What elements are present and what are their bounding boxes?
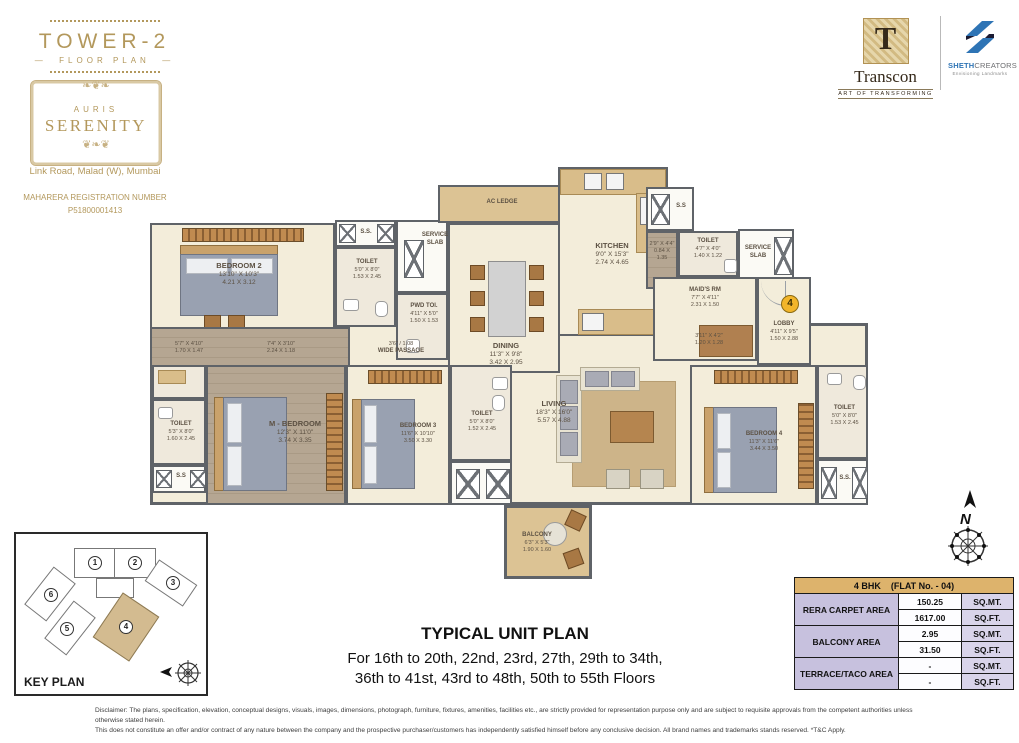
room-label-master-bedroom: M - BEDROOM 12'3" X 11'0" 3.74 X 3.35 (250, 419, 340, 446)
pillow-icon (227, 446, 242, 486)
chair-icon (529, 291, 544, 306)
area-table-header: 4 BHK (FLAT No. - 04) (795, 578, 1014, 594)
room-ac-ledge: AC LEDGE (438, 185, 566, 223)
area-unit: SQ.MT. (961, 658, 1013, 674)
area-value: - (899, 658, 962, 674)
area-unit: SQ.FT. (961, 674, 1013, 690)
room-label-lobby: LOBBY 4'11" X 9'5" 1.50 X 2.88 (760, 321, 808, 343)
shaft-x-icon (190, 470, 206, 488)
key-plan-title: KEY PLAN (24, 675, 84, 689)
area-table: 4 BHK (FLAT No. - 04) RERA CARPET AREA 1… (794, 577, 1014, 690)
room-toilet-top-left: TOILET 5'0" X 8'0" 1.53 X 2.45 (335, 247, 396, 327)
key-plan-unit-6: 6 (44, 588, 58, 602)
pillow-icon (364, 405, 377, 443)
dresser-icon (158, 370, 186, 384)
room-ss-top-right: S.S (646, 187, 694, 231)
room-label-living: LIVING 18'3" X 16'0" 5.57 X 4.88 (516, 399, 592, 426)
sheth-creators-logo: SHETHCREATORS Envisioning Landmarks (948, 20, 1012, 76)
area-unit: SQ.FT. (961, 642, 1013, 658)
room-master-bedroom: M - BEDROOM 12'3" X 11'0" 3.74 X 3.35 (206, 365, 346, 505)
room-label-ac-ledge: AC LEDGE (440, 199, 564, 207)
room-ss-bottom-right: S.S. (817, 459, 868, 505)
shaft-x-icon (456, 469, 480, 499)
key-plan-unit-4: 4 (119, 620, 133, 634)
wc-icon (724, 259, 737, 273)
patio-chair-icon (563, 548, 585, 570)
floor-plan: BEDROOM 2 13'10" X 10'3" 4.21 X 3.12 S.S… (148, 163, 868, 593)
pillow-icon (717, 452, 731, 488)
transcon-monogram-icon: T (863, 18, 909, 64)
key-plan-compass-icon (158, 656, 202, 690)
room-service-slab-top-left: SERVICE SLAB (396, 220, 448, 293)
room-label-service-tl: SERVICE SLAB (420, 232, 450, 248)
area-value: 1617.00 (899, 610, 962, 626)
room-balcony: BALCONY 6'3" X 5'3" 1.90 X 1.60 (504, 505, 592, 579)
sink-icon (606, 173, 624, 190)
logo-ornament-bottom: ❦❧❦ (31, 140, 161, 150)
wc-icon (492, 395, 505, 411)
sheth-tagline: Envisioning Landmarks (948, 71, 1012, 76)
room-label-bedroom2: BEDROOM 2 13'10" X 10'3" 4.21 X 3.12 (184, 261, 294, 288)
logo-serenity-text: SERENITY (31, 116, 161, 136)
key-plan-unit-5: 5 (60, 622, 74, 636)
area-value: - (899, 674, 962, 690)
room-bedroom4: BEDROOM 4 11'3" X 11'6" 3.44 X 3.50 (690, 365, 817, 505)
room-lobby: 4 LOBBY 4'11" X 9'5" 1.50 X 2.88 (757, 277, 811, 365)
shaft-x-icon (852, 467, 868, 499)
dining-table-icon (488, 261, 526, 337)
room-label-ss-tr: S.S (670, 203, 692, 211)
transcon-name: Transcon (838, 67, 933, 87)
pillow-icon (364, 446, 377, 484)
floors-line-1: For 16th to 20th, 22nd, 23rd, 27th, 29th… (270, 649, 740, 669)
disclaimer-line-1: Disclaimer: The plans, specification, el… (95, 706, 937, 726)
sink-icon (827, 373, 842, 385)
foyer-dims: 3'11" X 4'2" 1.20 X 1.28 (672, 333, 746, 347)
logo-ornament-top: ❧❦❧ (31, 81, 161, 91)
key-plan-unit-2: 2 (128, 556, 142, 570)
room-label-dining: DINING 11'3" X 9'8" 3.42 X 2.95 (456, 341, 556, 368)
room-bedroom3: BEDROOM 3 11'6" X 10'10" 3.50 X 3.30 (346, 365, 450, 505)
wardrobe-icon (714, 370, 798, 384)
dotted-divider (50, 71, 160, 75)
dotted-divider (50, 20, 160, 24)
area-unit: SQ.MT. (961, 594, 1013, 610)
room-label-kitchen: KITCHEN 9'0" X 15'3" 2.74 X 4.65 (562, 241, 662, 268)
logo-divider (940, 16, 941, 90)
shaft-x-icon (821, 467, 837, 499)
room-label-ss-br: S.S. (833, 475, 857, 483)
shaft-x-icon (651, 194, 670, 225)
area-row-label: BALCONY AREA (795, 626, 899, 658)
room-toilet-top-right: TOILET 4'7" X 4'0" 1.40 X 1.22 (678, 231, 738, 277)
area-value: 31.50 (899, 642, 962, 658)
dressing-dims-1: 5'7" X 4'10" 1.70 X 1.47 (154, 341, 224, 355)
room-label-toilet-tr: TOILET 4'7" X 4'0" 1.40 X 1.22 (681, 238, 735, 260)
transcon-logo: T Transcon ART OF TRANSFORMING (838, 18, 933, 99)
chair-icon (470, 291, 485, 306)
wardrobe-icon (182, 228, 304, 242)
chair-icon (529, 317, 544, 332)
logo-auris-text: AURIS (31, 105, 161, 114)
armchair-icon (640, 469, 664, 489)
flat-number-badge: 4 (781, 295, 799, 313)
area-row-label: RERA CARPET AREA (795, 594, 899, 626)
tower-subtitle: — FLOOR PLAN — (22, 56, 187, 65)
north-compass: N (936, 488, 1000, 570)
key-plan-unit-3: 3 (166, 576, 180, 590)
wc-icon (375, 301, 388, 317)
pillow-icon (227, 403, 242, 443)
sheth-s-icon (965, 20, 995, 54)
sink-icon (492, 377, 508, 390)
room-ss-bottom-left: S.S (152, 465, 206, 493)
room-label-toilet-tl: TOILET 5'0" X 8'0" 1.53 X 2.45 (339, 259, 395, 281)
room-toilet-right: TOILET 5'0" X 8'0" 1.53 X 2.45 (817, 365, 868, 459)
disclaimer: Disclaimer: The plans, specification, el… (95, 706, 937, 737)
room-toilet-middle: TOILET 5'0" X 8'0" 1.52 X 2.45 (450, 365, 512, 461)
dressing-dims-2: 7'4" X 3'10" 2.24 X 1.18 (244, 341, 318, 355)
typical-unit-plan-title: TYPICAL UNIT PLAN (270, 624, 740, 644)
room-label-bedroom3: BEDROOM 3 11'6" X 10'10" 3.50 X 3.30 (386, 423, 450, 445)
room-label-ss-bl: S.S (170, 473, 192, 481)
room-label-ss: S.S. (354, 229, 378, 237)
chair-icon (529, 265, 544, 280)
room-dining: DINING 11'3" X 9'8" 3.42 X 2.95 (448, 223, 560, 373)
chair-icon (470, 265, 485, 280)
tower-title: TOWER-2 (22, 30, 187, 54)
room-label-bedroom4: BEDROOM 4 11'3" X 11'6" 3.44 X 3.50 (722, 431, 806, 453)
wardrobe-icon (368, 370, 442, 384)
transcon-tagline: ART OF TRANSFORMING (838, 89, 933, 99)
room-toilet-left: TOILET 5'3" X 8'0" 1.60 X 2.45 (152, 399, 206, 465)
room-label-maids: MAID'S RM 7'7" X 4'11" 2.31 X 1.50 (657, 287, 753, 309)
north-label: N (960, 511, 972, 528)
wc-icon (853, 375, 866, 390)
shaft-x-icon (377, 224, 394, 243)
area-unit: SQ.MT. (961, 626, 1013, 642)
room-label-toilet-left: TOILET 5'3" X 8'0" 1.60 X 2.45 (154, 421, 208, 443)
room-bedroom2: BEDROOM 2 13'10" X 10'3" 4.21 X 3.12 (150, 223, 335, 329)
room-ss-top-left: S.S. (335, 220, 396, 247)
footer-plan-description: TYPICAL UNIT PLAN For 16th to 20th, 22nd… (270, 624, 740, 690)
shaft-x-icon (774, 237, 793, 275)
room-maids: MAID'S RM 7'7" X 4'11" 2.31 X 1.50 (653, 277, 757, 361)
tower-header: TOWER-2 — FLOOR PLAN — (22, 20, 187, 75)
key-plan-unit-1: 1 (88, 556, 102, 570)
room-label-pwd: PWD TOI. 4'11" X 5'0" 1.50 X 1.53 (399, 303, 449, 325)
room-label-service-tr: SERVICE SLAB (742, 245, 774, 261)
area-value: 150.25 (899, 594, 962, 610)
armchair-icon (606, 469, 630, 489)
north-arrow-icon (964, 490, 976, 508)
shaft-x-icon (486, 469, 510, 499)
area-value: 2.95 (899, 626, 962, 642)
sofa-cushion-icon (585, 371, 609, 387)
chair-icon (470, 317, 485, 332)
sink-icon (158, 407, 173, 419)
sofa-icon (580, 367, 640, 391)
area-unit: SQ.FT. (961, 610, 1013, 626)
auris-serenity-logo: ❧❦❧ AURIS SERENITY ❦❧❦ (30, 80, 162, 166)
duct-dims: 2'9" X 4'4" 0.84 X 1.35 (648, 241, 676, 262)
room-label-toilet-right: TOILET 5'0" X 8'0" 1.53 X 2.45 (819, 405, 870, 427)
area-row-label: TERRACE/TACO AREA (795, 658, 899, 690)
hob-icon (584, 173, 602, 190)
room-label-toilet-mid: TOILET 5'0" X 8'0" 1.52 X 2.45 (453, 411, 511, 433)
sofa-cushion-icon (611, 371, 635, 387)
room-label-balcony: BALCONY 6'3" X 5'3" 1.90 X 1.60 (509, 532, 565, 554)
room-dressing: 5'7" X 4'10" 1.70 X 1.47 7'4" X 3'10" 2.… (150, 327, 350, 369)
floors-line-2: 36th to 41st, 43rd to 48th, 50th to 55th… (270, 669, 740, 689)
room-service-slab-top-right: SERVICE SLAB (738, 229, 794, 279)
room-entry-left (152, 365, 206, 399)
patio-chair-icon (564, 509, 587, 532)
sofa-cushion-icon (560, 432, 578, 456)
coffee-table-icon (610, 411, 654, 443)
room-shaft-middle (450, 461, 512, 505)
sink-icon (343, 299, 359, 311)
passage-label: 3'6" / 1.08 WIDE PASSAGE (356, 341, 446, 356)
disclaimer-line-2: This does not constitute an offer and/or… (95, 726, 937, 736)
sheth-name: SHETHCREATORS (948, 61, 1012, 70)
key-plan: 1 2 3 4 5 6 KEY PLAN (14, 532, 208, 696)
sink-icon (582, 313, 604, 331)
